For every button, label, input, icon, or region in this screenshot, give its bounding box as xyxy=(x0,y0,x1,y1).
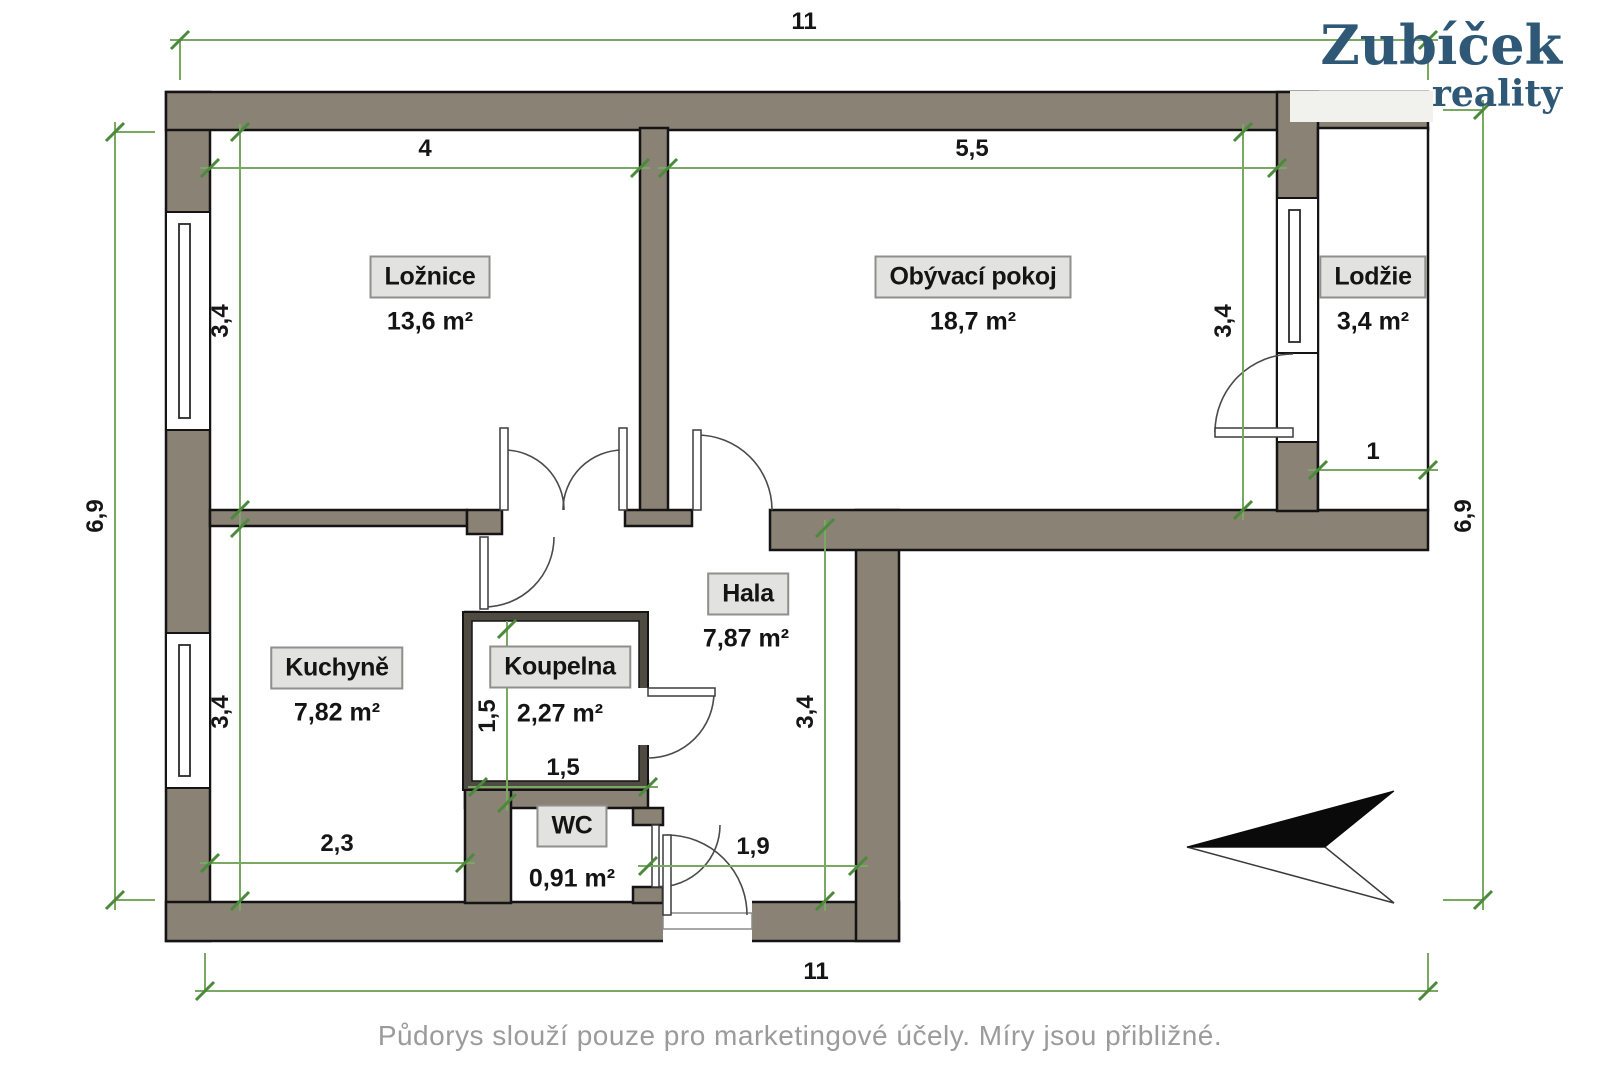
room-label-loznice: Ložnice xyxy=(370,256,491,299)
dim-label-loggia-width: 1 xyxy=(1366,438,1379,466)
dim-label-entry-width: 1,9 xyxy=(736,833,769,861)
room-label-obyvaci-pokoj: Obývací pokoj xyxy=(875,256,1072,299)
dim-label-left-69: 6,9 xyxy=(82,499,110,532)
room-area-obyvaci-pokoj: 18,7 m² xyxy=(930,308,1016,337)
dim-label-kitchen-width: 2,3 xyxy=(320,830,353,858)
wall-hall-right xyxy=(856,510,899,941)
bathroom-door xyxy=(648,688,715,758)
dim-label-bathroom-height: 1,5 xyxy=(474,699,502,732)
wall-kitchen-top xyxy=(210,510,467,526)
room-area-loznice: 13,6 m² xyxy=(387,308,473,337)
dim-label-top-11: 11 xyxy=(791,8,816,36)
room-area-hala: 7,87 m² xyxy=(703,625,789,654)
dim-label-bottom-11: 11 xyxy=(803,958,828,986)
wall-bottom xyxy=(166,902,899,941)
walls xyxy=(166,92,1428,941)
wall-wc-left-corner xyxy=(465,781,511,903)
room-area-koupelna: 2,27 m² xyxy=(517,700,603,729)
dim-label-living-height: 3,4 xyxy=(1210,304,1238,337)
north-arrow-icon xyxy=(1187,791,1394,903)
wall-south-band xyxy=(770,510,1428,550)
room-label-kuchyne: Kuchyně xyxy=(270,647,403,690)
wall-wc-right-stub-bottom xyxy=(633,887,663,903)
room-area-wc: 0,91 m² xyxy=(529,865,615,894)
dim-label-right-69: 6,9 xyxy=(1450,499,1478,532)
room-label-wc: WC xyxy=(536,805,607,848)
brand-tagline: reality xyxy=(1432,76,1562,112)
wall-top xyxy=(166,92,1428,130)
logo-background-box xyxy=(1290,91,1433,122)
floorplan-drawing xyxy=(0,0,1600,1065)
wc-door xyxy=(652,825,720,887)
dim-top-11 xyxy=(170,31,1438,80)
room-label-hala: Hala xyxy=(707,573,789,616)
room-label-koupelna: Koupelna xyxy=(489,646,631,689)
bedroom-window-icon xyxy=(179,224,190,418)
footer-disclaimer: Půdorys slouží pouze pro marketingové úč… xyxy=(0,1020,1600,1052)
brand-logo: Zubíček xyxy=(1320,18,1562,72)
living-window-icon xyxy=(1289,210,1300,342)
room-area-kuchyne: 7,82 m² xyxy=(294,699,380,728)
dim-label-hall-height: 3,4 xyxy=(792,695,820,728)
wall-pillar-kitchen xyxy=(467,510,502,534)
floorplan-canvas: Ložnice 13,6 m² Obývací pokoj 18,7 m² Lo… xyxy=(0,0,1600,1065)
wall-bedroom-living-divider xyxy=(640,128,668,512)
entrance-threshold xyxy=(663,913,752,929)
dim-left-69 xyxy=(106,122,155,910)
kitchen-door xyxy=(480,537,554,609)
dim-label-bathroom-width: 1,5 xyxy=(546,754,579,782)
dim-label-bedroom-height: 3,4 xyxy=(207,304,235,337)
living-room-door xyxy=(693,430,772,510)
dim-label-kitchen-height: 3,4 xyxy=(207,695,235,728)
wall-hall-top-pillar xyxy=(625,510,692,526)
room-label-lodzie: Lodžie xyxy=(1319,256,1426,299)
wall-wc-right-stub-top xyxy=(633,808,663,825)
entrance-opening xyxy=(663,900,752,943)
room-area-lodzie: 3,4 m² xyxy=(1337,308,1409,337)
dim-label-living-width: 5,5 xyxy=(955,135,988,163)
bedroom-double-door xyxy=(500,428,627,510)
dim-label-bedroom-width: 4 xyxy=(418,135,431,163)
kitchen-window-icon xyxy=(179,645,190,776)
